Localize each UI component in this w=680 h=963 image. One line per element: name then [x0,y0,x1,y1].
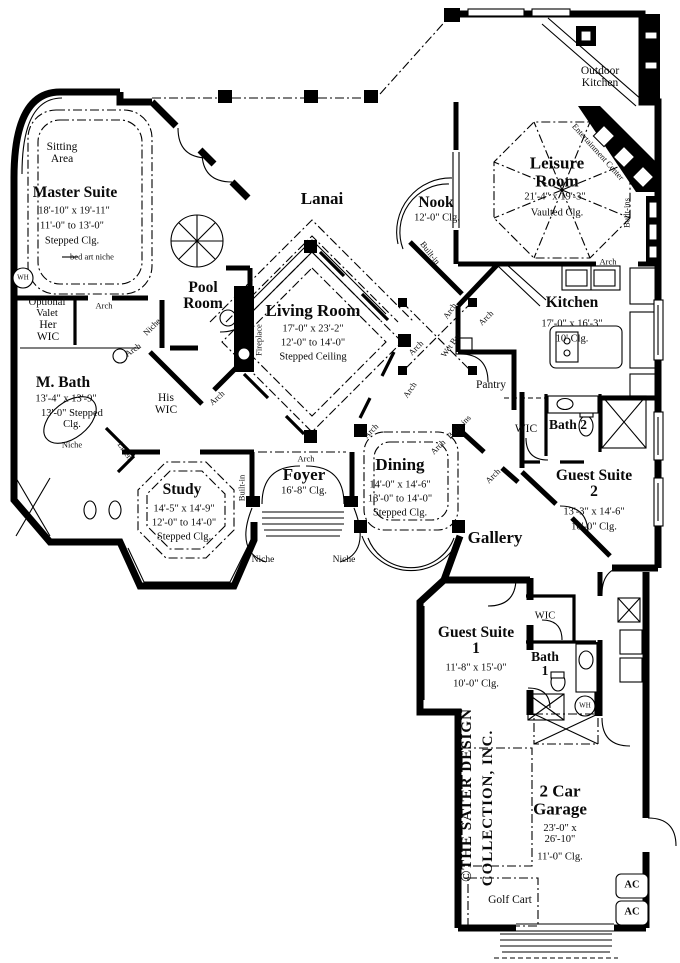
room-label-foyer: Foyer [283,466,325,484]
dim-garage-1: 23'-0" x 26'-10" [529,824,591,846]
dim-living-1: 17'-0" x 23'-2" [282,325,343,336]
dim-study-3: Stepped Clg. [157,533,211,544]
room-label-golf-cart: Golf Cart [488,895,532,907]
dim-study-2: 12'-0" to 14'-0" [152,519,216,530]
dim-guest1-2: 10'-0" Clg. [453,680,499,691]
dim-dining-2: 13'-0" to 14'-0" [368,495,432,506]
annotation-niche: Niche [333,556,356,566]
annotation-arch: Arch [298,455,315,464]
dim-mbath-2: 13'-0" Stepped Clg. [34,409,110,431]
dim-guest1-1: 11'-8" x 15'-0" [446,664,507,675]
annotation-wh: WH [17,274,29,281]
copyright-line1: ©THE SATER DESIGN [460,708,476,882]
annotation-built-ins: Built-ins [623,198,632,228]
dim-dining-1: 14'-0" x 14'-6" [369,481,430,492]
annotation-built-in: Built-in [238,475,247,501]
room-label-garage: 2 Car Garage [522,782,598,817]
copyright-line2: COLLECTION, INC. [481,730,497,886]
dim-living-2: 12'-0" to 14'-0" [281,339,345,350]
room-label-master-bath: M. Bath [36,375,90,391]
dim-nook-1: 12'-0" Clg. [414,214,460,225]
dim-master-1: 18'-10" x 19'-11" [38,207,109,218]
annotation-niche: Niche [252,556,275,566]
room-label-sitting-area: Sitting Area [35,142,90,166]
dim-mbath-1: 13'-4" x 13'-9" [35,395,96,406]
room-label-outdoor-kitchen: Outdoor Kitchen [568,66,632,90]
room-label-his-wic: His WIC [146,393,186,417]
dim-foyer-1: 16'-8" Clg. [281,487,327,498]
outdoor-kitchen-zone [542,18,642,106]
room-label-gallery: Gallery [468,529,523,547]
room-label-study: Study [163,482,202,498]
dim-study-1: 14'-5" x 14'-9" [153,505,214,516]
dim-guest2-1: 13'-3" x 14'-6" [563,508,624,519]
annotation-fireplace: Fireplace [255,324,264,356]
floor-plan: Lanai Sitting Area Master Suite Pool Roo… [0,0,680,963]
annotation-arch: Arch [600,258,617,267]
room-label-optional-valet: Optional Valet [20,298,74,320]
annotation-bed-art-niche: bed art niche [70,253,114,262]
room-label-guest-suite1: Guest Suite 1 [434,625,519,657]
dim-leisure-2: Vaulted Clg. [531,209,584,220]
annotation-ac: AC [624,908,639,919]
room-label-bath2: Bath 2 [549,418,587,432]
room-label-nook: Nook [418,195,453,211]
annotation-ac: AC [624,881,639,892]
room-label-living-room: Living Room [266,302,361,320]
dim-living-3: Stepped Ceiling [279,353,346,364]
room-label-pantry: Pantry [476,380,506,392]
room-label-her-wic: Her WIC [28,320,68,344]
dim-dining-3: Stepped Clg. [373,509,427,520]
dim-guest2-2: 10'-0" Clg. [571,523,617,534]
annotation-arch: Arch [96,302,113,311]
dim-leisure-1: 21'-4" x 19'-3" [524,193,585,204]
room-label-master-suite: Master Suite [33,185,118,201]
dim-kitchen-1: 17'-0" x 16'-3" [541,320,602,331]
room-label-bath1: Bath 1 [527,650,563,678]
annotation-wh: WH [579,702,591,709]
dim-master-3: Stepped Clg. [45,237,99,248]
room-label-wic-bath2: WIC [515,424,537,436]
dim-kitchen-2: 10' Clg. [556,335,589,346]
room-label-kitchen: Kitchen [546,295,599,311]
room-label-lanai: Lanai [301,190,344,208]
room-label-wic-guest1: WIC [535,612,555,623]
room-label-dining: Dining [375,456,424,474]
dim-garage-2: 11'-0" Clg. [537,853,582,864]
dim-master-2: 11'-0" to 13'-0" [40,222,104,233]
lanai-boundary [152,8,460,103]
room-label-leisure-room: Leisure Room [512,154,602,189]
room-label-pool-room: Pool Room [174,280,232,312]
annotation-niche: Niche [62,441,82,450]
room-label-guest-suite2: Guest Suite 2 [552,468,637,500]
